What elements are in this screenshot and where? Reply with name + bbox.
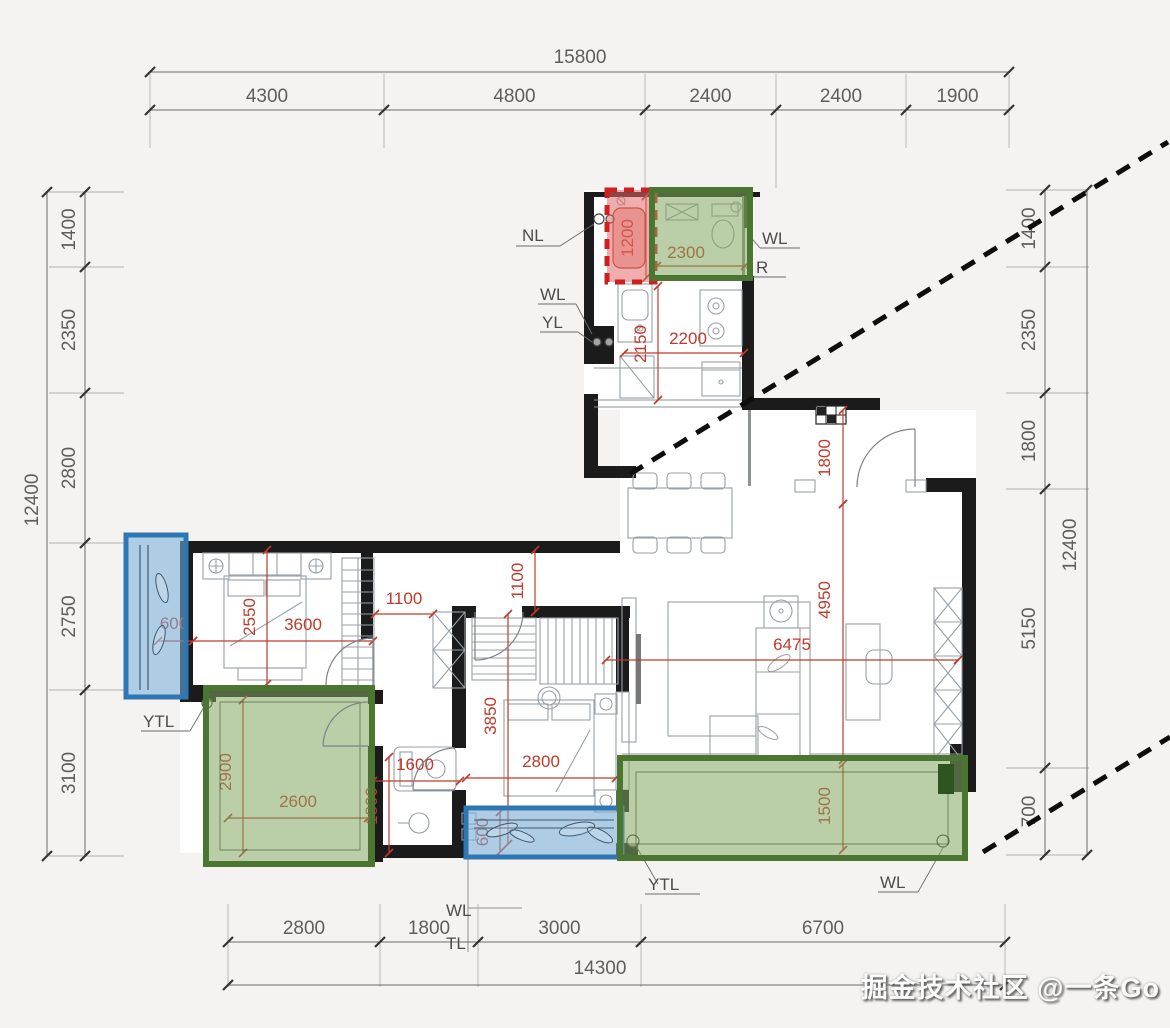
svg-text:2150: 2150: [631, 325, 650, 363]
west-bay-window: [126, 535, 186, 697]
dim-chain-top: 4300480024002400190015800: [145, 47, 1014, 188]
svg-text:14300: 14300: [574, 958, 627, 979]
svg-text:3600: 3600: [284, 615, 322, 634]
svg-text:1400: 1400: [59, 208, 80, 250]
svg-text:2800: 2800: [522, 752, 560, 771]
svg-text:3000: 3000: [538, 918, 580, 939]
svg-text:2350: 2350: [1019, 309, 1040, 351]
svg-text:12400: 12400: [1060, 519, 1081, 572]
svg-text:TL: TL: [446, 934, 466, 953]
svg-text:2400: 2400: [689, 86, 731, 107]
svg-text:1900: 1900: [936, 86, 978, 107]
watermark: 掘金技术社区 @一条Go: [861, 966, 1160, 1005]
svg-text:6475: 6475: [773, 635, 811, 654]
south-bay-window: [466, 808, 622, 857]
svg-text:2800: 2800: [59, 447, 80, 489]
svg-text:R: R: [756, 258, 768, 277]
svg-text:2200: 2200: [669, 329, 707, 348]
svg-text:YTL: YTL: [648, 875, 679, 894]
north-closet-highlight: [607, 190, 655, 282]
svg-text:YTL: YTL: [143, 712, 174, 731]
svg-text:4950: 4950: [815, 581, 834, 619]
svg-text:1800: 1800: [408, 918, 450, 939]
svg-text:3100: 3100: [59, 752, 80, 794]
entry-door-jamb: [795, 480, 815, 492]
svg-text:2750: 2750: [59, 595, 80, 637]
svg-text:2800: 2800: [283, 918, 325, 939]
pipe-label-tl-bathroom-drain: TL: [446, 934, 466, 953]
svg-text:5150: 5150: [1019, 607, 1040, 649]
floor-plan-drawing: 4300480024002400190015800280018003000670…: [0, 0, 1170, 1028]
dim-chain-right: 140023501800515070012400: [1006, 185, 1092, 860]
dim-chain-left: 1400235028002750310012400: [22, 187, 124, 861]
svg-text:12400: 12400: [22, 474, 43, 527]
svg-text:2350: 2350: [59, 309, 80, 351]
pipe-label-wl-bathroom-drain: WL: [446, 901, 472, 920]
svg-text:NL: NL: [522, 226, 544, 245]
svg-text:WL: WL: [540, 285, 566, 304]
unit-boundary-diagonal: [983, 737, 1170, 852]
svg-text:WL: WL: [880, 873, 906, 892]
svg-text:3850: 3850: [481, 697, 500, 735]
tv: [636, 634, 641, 704]
pipe-label-wl-north-bath: WL: [748, 229, 800, 248]
svg-text:YL: YL: [542, 313, 563, 332]
svg-text:1100: 1100: [386, 589, 423, 608]
svg-text:15800: 15800: [554, 47, 607, 68]
svg-text:WL: WL: [446, 901, 472, 920]
north-bath-highlight: [652, 190, 750, 278]
bedroom3-highlight: [206, 688, 372, 864]
entry-door-jamb: [906, 480, 926, 492]
svg-text:1800: 1800: [815, 439, 834, 477]
svg-text:2550: 2550: [240, 598, 259, 636]
south-balcony-highlight: [620, 758, 965, 858]
svg-text:4300: 4300: [246, 86, 288, 107]
svg-text:1800: 1800: [1019, 420, 1040, 462]
floor-plan-canvas: 4300480024002400190015800280018003000670…: [0, 0, 1170, 1028]
svg-text:1100: 1100: [508, 563, 527, 600]
electric-meter-box: [816, 406, 846, 424]
svg-text:2400: 2400: [820, 86, 862, 107]
svg-text:6700: 6700: [802, 918, 844, 939]
svg-text:4800: 4800: [493, 86, 535, 107]
svg-text:WL: WL: [762, 229, 788, 248]
